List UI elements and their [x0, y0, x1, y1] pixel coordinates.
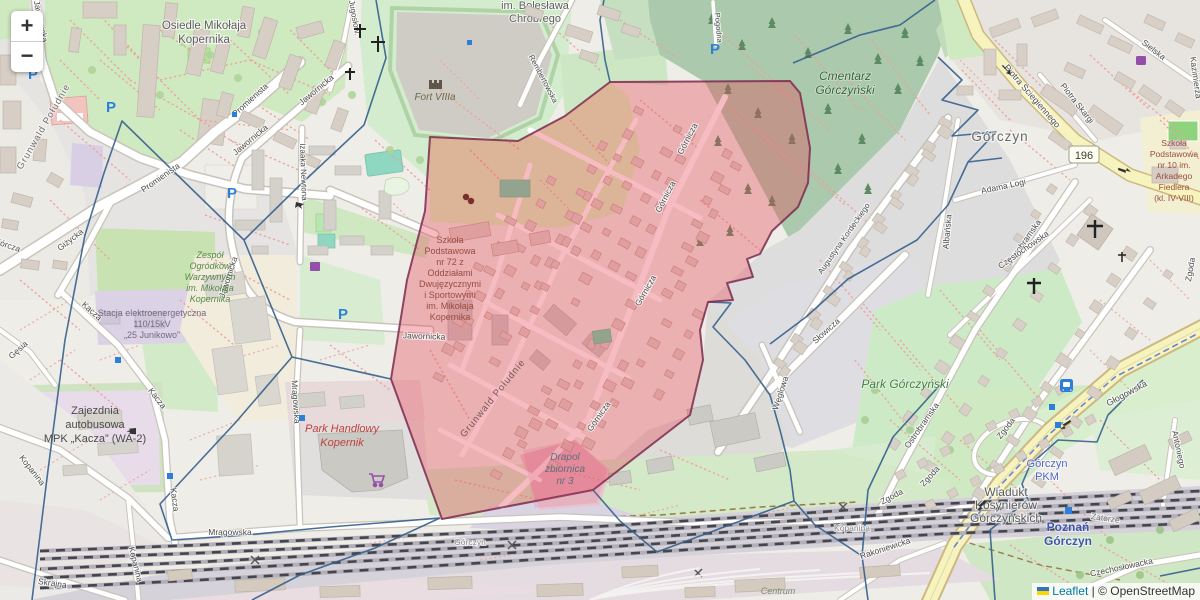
svg-text:Warzywnych: Warzywnych [185, 272, 236, 282]
svg-text:Park Górczyński: Park Górczyński [861, 377, 949, 391]
svg-text:Kopanina: Kopanina [834, 523, 870, 533]
svg-text:P: P [338, 306, 348, 323]
svg-text:Drapol: Drapol [550, 452, 580, 463]
svg-text:Fort VIIIa: Fort VIIIa [414, 92, 456, 103]
svg-text:Górczyński: Górczyński [815, 83, 875, 97]
svg-text:Fiedlera: Fiedlera [1159, 182, 1190, 192]
svg-text:Górczyn: Górczyn [454, 537, 486, 547]
svg-text:P: P [106, 99, 116, 116]
svg-text:P: P [227, 185, 237, 202]
svg-text:Osiedle Mikołaja: Osiedle Mikołaja [162, 20, 247, 32]
svg-text:„25 Junikowo”: „25 Junikowo” [124, 330, 180, 340]
svg-text:Ogródków: Ogródków [189, 261, 231, 271]
svg-text:Kopernik: Kopernik [320, 437, 364, 449]
svg-text:Kopernika: Kopernika [430, 312, 471, 322]
svg-text:PKM: PKM [1035, 471, 1059, 483]
svg-text:Górczyn: Górczyn [1027, 458, 1068, 470]
svg-text:Górczyńskich: Górczyńskich [970, 511, 1042, 525]
svg-text:Górczyn: Górczyn [971, 129, 1028, 144]
svg-text:im. Mikołaja: im. Mikołaja [186, 283, 234, 293]
svg-text:Kopernika: Kopernika [178, 34, 230, 46]
svg-text:Stacja elektroenergetyczna: Stacja elektroenergetyczna [98, 308, 207, 318]
svg-text:Jawornicka: Jawornicka [403, 330, 446, 341]
svg-text:Podstawowa: Podstawowa [424, 246, 475, 256]
svg-text:Zespół: Zespół [195, 250, 224, 260]
svg-text:110/15kV: 110/15kV [133, 319, 170, 329]
svg-text:nr 72 z: nr 72 z [436, 257, 464, 267]
svg-text:Szkoła: Szkoła [1161, 138, 1187, 148]
svg-text:MPK „Kacza” (WA-2): MPK „Kacza” (WA-2) [44, 433, 146, 445]
svg-text:autobusowa: autobusowa [65, 419, 125, 431]
svg-text:(kl. IV-VIII): (kl. IV-VIII) [1154, 193, 1194, 203]
svg-text:nr 3: nr 3 [556, 476, 574, 487]
svg-text:Kopernika: Kopernika [190, 294, 231, 304]
svg-text:196: 196 [1075, 150, 1093, 162]
svg-text:Arkadego: Arkadego [1156, 171, 1193, 181]
svg-text:Park Handlowy: Park Handlowy [305, 423, 380, 435]
svg-text:Mrągowska: Mrągowska [208, 527, 252, 537]
svg-text:Zajezdnia: Zajezdnia [71, 405, 120, 417]
svg-text:Centrum: Centrum [761, 586, 796, 596]
svg-text:Poznań: Poznań [1047, 520, 1090, 534]
svg-text:Wiadukt: Wiadukt [984, 485, 1028, 499]
svg-text:im. Mikołaja: im. Mikołaja [426, 301, 474, 311]
svg-text:zbiornica: zbiornica [544, 464, 585, 475]
svg-text:nr 10 im.: nr 10 im. [1157, 160, 1190, 170]
svg-text:Cmentarz: Cmentarz [819, 69, 871, 83]
svg-text:Podstawowa: Podstawowa [1150, 149, 1198, 159]
svg-text:i Sportowymi: i Sportowymi [424, 290, 476, 300]
svg-text:P: P [710, 41, 720, 58]
svg-text:Górczyn: Górczyn [1044, 534, 1092, 548]
svg-text:Kosynierów: Kosynierów [975, 498, 1037, 512]
svg-text:Szkoła: Szkoła [436, 235, 463, 245]
svg-text:Dwujęzycznymi: Dwujęzycznymi [419, 279, 481, 289]
svg-text:Oddziałami: Oddziałami [427, 268, 472, 278]
